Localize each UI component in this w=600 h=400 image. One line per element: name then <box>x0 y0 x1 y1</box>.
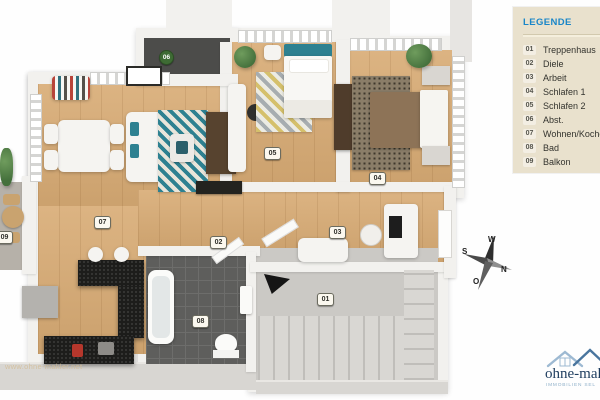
legend-item-arbeit: 03 Arbeit <box>523 73 600 82</box>
legend-item-schlafen1: 04 Schlafen 1 <box>523 87 600 96</box>
kitchen-island-side <box>118 286 144 338</box>
stairs-steps <box>258 316 406 380</box>
legend-label: Balkon <box>543 157 571 167</box>
legend-item-balkon: 09 Balkon <box>523 157 600 166</box>
outer-wall-bottom-right <box>256 380 448 394</box>
office-monitor <box>389 216 402 238</box>
legend-num: 03 <box>523 73 536 83</box>
bed2-blanket-fold <box>284 100 332 118</box>
kitchen-appliance-red <box>72 344 83 357</box>
kitchen-cabinet <box>22 286 58 318</box>
logo-wordmark: ohne-makler <box>545 366 600 383</box>
window-living-left <box>30 94 42 182</box>
stairs-landing <box>404 270 434 380</box>
legend-num: 09 <box>523 157 536 167</box>
legend-panel: LEGENDE 01 Treppenhaus 02 Diele 03 Arbei… <box>513 7 600 173</box>
legend-num: 07 <box>523 129 536 139</box>
legend-item-bad: 08 Bad <box>523 143 600 152</box>
room-badge-bedroom1: 04 <box>369 172 386 185</box>
compass-south: S <box>462 247 467 256</box>
bar-stool <box>88 247 103 262</box>
legend-item-treppenhaus: 01 Treppenhaus <box>523 45 600 54</box>
compass-west: W <box>488 235 496 244</box>
room-badge-balcony: 09 <box>0 231 13 244</box>
watermark-url: www.ohne-makler.net <box>5 362 82 371</box>
plant <box>406 44 432 68</box>
legend-item-wohnen-kochen: 07 Wohnen/Kochen <box>523 129 600 138</box>
bedroom2-desk <box>228 84 246 172</box>
legend-num: 08 <box>523 143 536 153</box>
room-badge-bedroom2: 05 <box>264 147 281 160</box>
room-badge-storage: 06 <box>159 50 174 65</box>
bedroom1-nightstand <box>422 66 450 85</box>
legend-label: Schlafen 1 <box>543 87 586 97</box>
dining-chair <box>44 124 58 144</box>
bookshelf <box>52 76 90 100</box>
dining-chair <box>110 150 124 170</box>
legend-num: 02 <box>523 59 536 69</box>
office-bench <box>298 238 348 262</box>
office-chair <box>360 224 382 246</box>
bedroom2-nightstand <box>264 45 281 60</box>
wall-hall-bath <box>138 246 260 256</box>
wall-top-right-block <box>450 0 472 62</box>
compass-east: O <box>473 277 479 286</box>
kitchen-island <box>78 260 144 286</box>
legend-label: Treppenhaus <box>543 45 596 55</box>
compass-north: N <box>501 265 507 274</box>
bed1-pillows <box>420 90 448 148</box>
room-badge-hallway: 02 <box>210 236 227 249</box>
balcony-railing <box>22 176 36 274</box>
sofa-pillow <box>130 144 139 158</box>
legend-label: Schlafen 2 <box>543 101 586 111</box>
bathroom-sink <box>240 286 252 314</box>
bathtub-basin <box>152 276 170 338</box>
wardrobe <box>334 84 352 150</box>
hall-sideboard <box>196 181 242 194</box>
kitchen-counter <box>44 336 134 364</box>
bed1-blanket <box>370 92 422 148</box>
legend-label: Bad <box>543 143 559 153</box>
legend-title: LEGENDE <box>523 17 600 28</box>
legend-num: 05 <box>523 101 536 111</box>
legend-label: Diele <box>543 59 564 69</box>
legend-num: 06 <box>523 115 536 125</box>
sofa-pillow <box>130 122 139 136</box>
bar-stool <box>114 247 129 262</box>
compass-rose: W S N O <box>448 222 526 302</box>
room-badge-living: 07 <box>94 216 111 229</box>
ohne-makler-logo: ohne-makler IMMOBILIEN SEL <box>540 346 600 396</box>
legend-num: 01 <box>523 45 536 55</box>
tree-edge <box>0 148 13 186</box>
house-roofs-icon <box>540 346 600 368</box>
toilet-tank <box>213 350 239 358</box>
legend-item-schlafen2: 05 Schlafen 2 <box>523 101 600 110</box>
logo-tagline: IMMOBILIEN SEL <box>546 383 596 388</box>
window-bedroom1-right <box>452 56 465 188</box>
coffee-table-decor <box>176 141 188 154</box>
floorplan-canvas: 01 02 03 04 05 06 07 08 09 LEGENDE 01 Tr… <box>0 0 600 400</box>
wall-art-frame <box>126 66 162 86</box>
dining-table <box>58 120 110 172</box>
dining-chair <box>110 124 124 144</box>
room-badge-office: 03 <box>329 226 346 239</box>
room-badge-stairwell: 01 <box>317 293 334 306</box>
legend-label: Abst. <box>543 115 564 125</box>
room-badge-bathroom: 08 <box>192 315 209 328</box>
compass-star-icon <box>448 222 526 302</box>
wall-bedrooms-hall <box>222 182 454 192</box>
balcony-chair <box>3 194 20 205</box>
legend-divider <box>523 34 600 37</box>
dining-chair <box>44 150 58 170</box>
bedroom1-nightstand <box>422 146 450 165</box>
plant <box>234 46 256 68</box>
legend-item-abst: 06 Abst. <box>523 115 600 124</box>
balcony-table <box>2 206 24 228</box>
legend-num: 04 <box>523 87 536 97</box>
legend-label: Arbeit <box>543 73 567 83</box>
legend-item-diele: 02 Diele <box>523 59 600 68</box>
bed2-pillow <box>289 59 329 73</box>
legend-label: Wohnen/Kochen <box>543 129 600 139</box>
kitchen-sink <box>98 342 114 355</box>
window-bedroom2-top <box>238 30 332 43</box>
